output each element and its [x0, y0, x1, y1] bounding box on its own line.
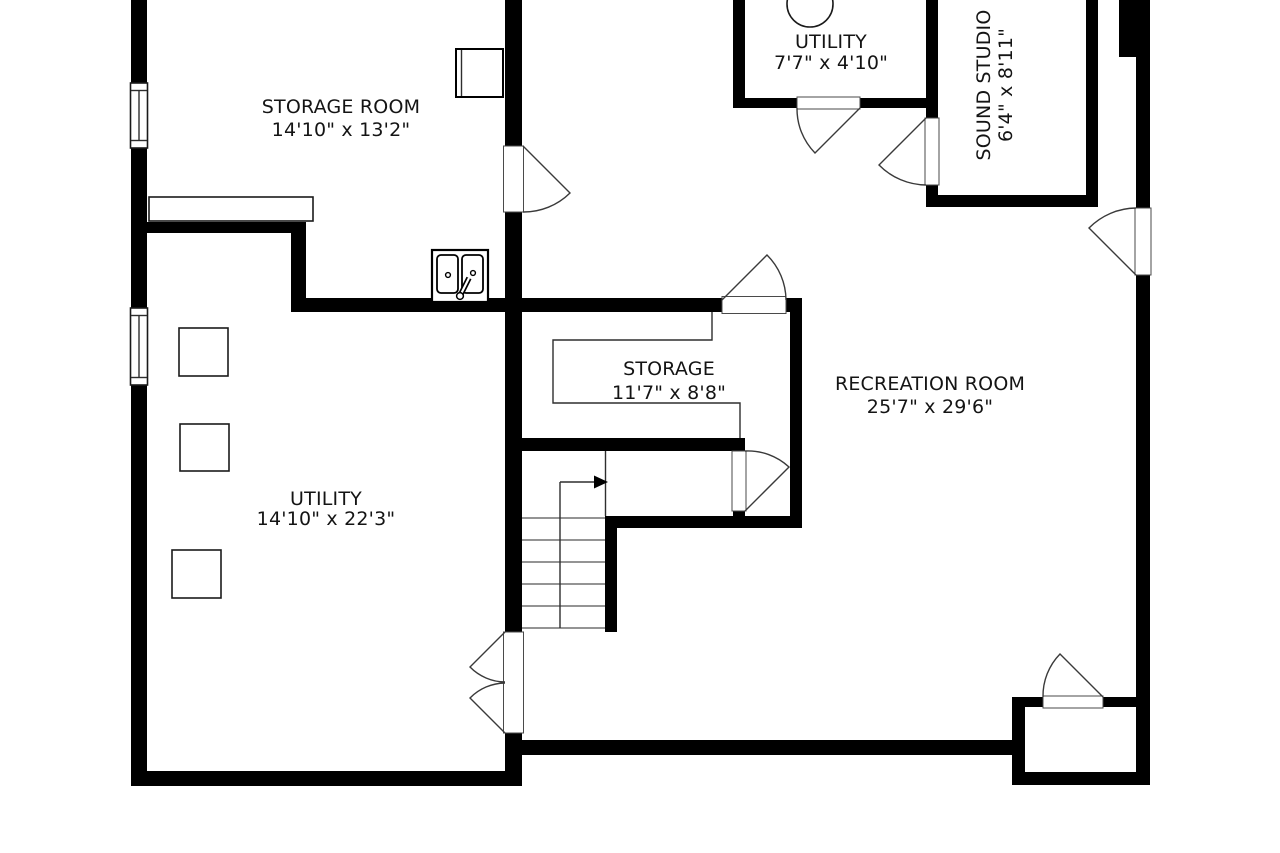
- door-sound-studio: [879, 118, 939, 185]
- wall-nook-bottom: [605, 516, 802, 528]
- label-recreation-room: RECREATION ROOM 25'7" x 29'6": [835, 373, 1025, 418]
- window-utility: [131, 308, 148, 385]
- label-storage-closet: STORAGE 11'7" x 8'8": [612, 358, 726, 404]
- label-sound-studio: SOUND STUDIO 6'4" x 8'11": [973, 10, 1017, 161]
- door-storage-nook: [732, 451, 789, 511]
- counter-storage-room: [149, 197, 313, 221]
- label-utility-small: UTILITY 7'7" x 4'10": [774, 31, 888, 74]
- room-dimensions: 7'7" x 4'10": [774, 52, 888, 74]
- room-name: STORAGE ROOM: [262, 96, 420, 118]
- stair-direction-arrow: [560, 476, 608, 489]
- room-dimensions: 6'4" x 8'11": [995, 28, 1017, 142]
- floor-plan-page: STORAGE ROOM 14'10" x 13'2" UTILITY 7'7"…: [0, 0, 1280, 853]
- double-sink: [432, 250, 488, 302]
- door-utility-double: [470, 632, 524, 733]
- doors: [470, 97, 1151, 733]
- window-storage-room: [131, 83, 148, 148]
- floor-plan: STORAGE ROOM 14'10" x 13'2" UTILITY 7'7"…: [0, 0, 1280, 853]
- room-name: RECREATION ROOM: [835, 373, 1025, 395]
- water-heater: [787, 0, 833, 27]
- wall-utility-small-left: [733, 0, 745, 108]
- label-utility-large: UTILITY 14'10" x 22'3": [257, 488, 396, 530]
- wall-recreation-bottom: [505, 740, 1025, 755]
- wall-utility-bottom: [131, 771, 522, 786]
- room-dimensions: 14'10" x 22'3": [257, 508, 396, 530]
- room-dimensions: 14'10" x 13'2": [272, 119, 411, 141]
- wall-storage-room-lower-left: [147, 222, 306, 233]
- appliance-box-storage-room: [456, 49, 503, 97]
- room-dimensions: 11'7" x 8'8": [612, 382, 726, 404]
- room-name: SOUND STUDIO: [973, 10, 995, 161]
- door-storage-room: [504, 146, 571, 212]
- room-name: STORAGE: [623, 358, 715, 380]
- wall-stair-right: [605, 516, 617, 632]
- room-name: UTILITY: [290, 488, 362, 510]
- room-name: UTILITY: [795, 31, 867, 53]
- door-utility-small: [797, 97, 860, 153]
- wall-storage-closet-right: [790, 298, 802, 527]
- staircase: [522, 451, 608, 628]
- room-labels: STORAGE ROOM 14'10" x 13'2" UTILITY 7'7"…: [257, 10, 1025, 530]
- wall-storage-closet-bottom: [505, 438, 745, 451]
- door-right-exterior: [1089, 208, 1151, 275]
- door-vestibule: [1043, 654, 1103, 708]
- room-dimensions: 25'7" x 29'6": [867, 396, 993, 418]
- utility-box-3: [172, 550, 221, 598]
- wall-right-exterior: [1136, 0, 1150, 772]
- wall-right-exterior-top-block: [1119, 0, 1150, 57]
- wall-vestibule-left: [1012, 697, 1025, 785]
- wall-vestibule-bottom: [1012, 772, 1150, 785]
- door-storage-closet-top: [722, 255, 786, 314]
- label-storage-room: STORAGE ROOM 14'10" x 13'2": [262, 96, 420, 141]
- wall-sound-studio-bottom: [926, 195, 1098, 207]
- utility-box-2: [180, 424, 229, 471]
- wall-sound-studio-right: [1086, 0, 1098, 207]
- utility-box-1: [179, 328, 228, 376]
